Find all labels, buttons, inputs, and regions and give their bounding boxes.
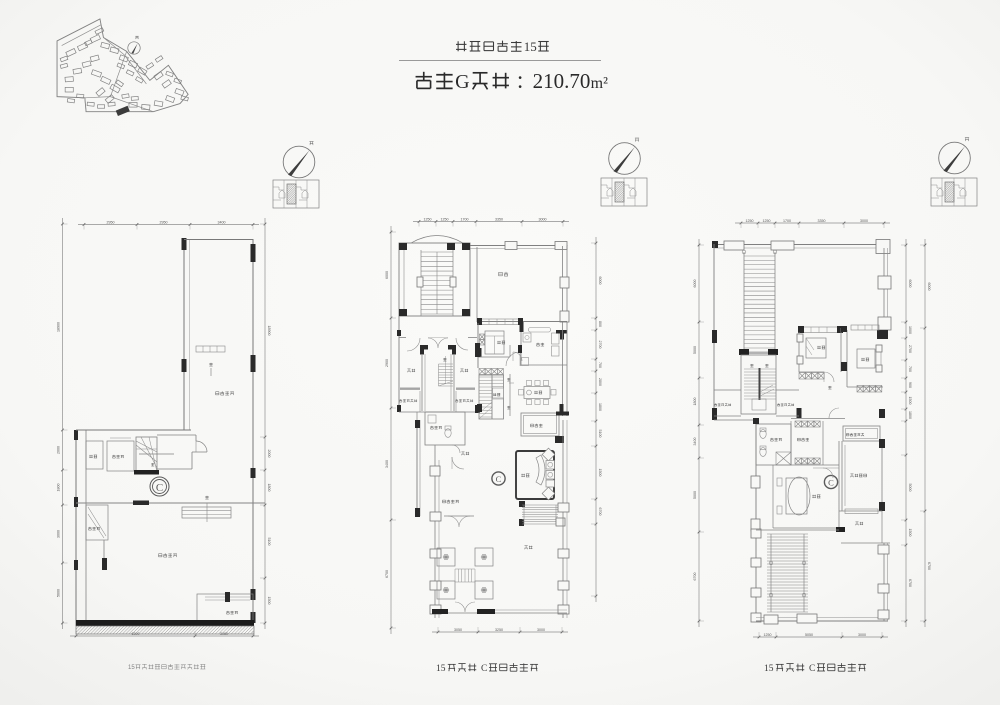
svg-text:900: 900: [908, 382, 912, 388]
svg-text:2950: 2950: [160, 220, 168, 224]
svg-text:C: C: [481, 664, 487, 674]
svg-text:1700: 1700: [783, 219, 791, 223]
svg-text:2700: 2700: [908, 345, 912, 353]
svg-text:6000: 6000: [598, 277, 602, 285]
svg-text:G: G: [455, 71, 469, 93]
svg-text:m²: m²: [591, 75, 608, 92]
svg-text:1500: 1500: [908, 397, 912, 405]
svg-text:3000: 3000: [57, 530, 61, 538]
svg-text:6000: 6000: [927, 283, 931, 291]
svg-text:15: 15: [436, 664, 446, 674]
svg-text:5000: 5000: [693, 491, 697, 499]
svg-text:1800: 1800: [267, 484, 271, 492]
svg-text:3400: 3400: [693, 438, 697, 446]
svg-text:15: 15: [764, 664, 774, 674]
svg-text:6700: 6700: [927, 562, 931, 570]
svg-text:2000: 2000: [267, 450, 271, 458]
svg-text:6700: 6700: [693, 573, 697, 581]
svg-text:5000: 5000: [908, 484, 912, 492]
svg-text:3350: 3350: [495, 217, 503, 221]
svg-text:1250: 1250: [424, 217, 432, 221]
svg-text:210.70: 210.70: [533, 69, 591, 93]
svg-text:6000: 6000: [908, 280, 912, 288]
svg-text:C: C: [496, 474, 502, 484]
svg-text:6000: 6000: [693, 280, 697, 288]
svg-text:1800: 1800: [908, 411, 912, 419]
svg-text:1250: 1250: [764, 633, 772, 637]
svg-text:3400: 3400: [385, 460, 389, 468]
svg-text:6700: 6700: [598, 508, 602, 516]
svg-text:1250: 1250: [441, 217, 449, 221]
svg-text:2950: 2950: [107, 220, 115, 224]
svg-text:5100: 5100: [598, 430, 602, 438]
svg-text:C: C: [828, 477, 834, 487]
svg-text:2900: 2900: [385, 359, 389, 367]
svg-text:5050: 5050: [805, 633, 813, 637]
svg-text:1800: 1800: [693, 398, 697, 406]
svg-text:15: 15: [524, 39, 537, 54]
svg-text:3000: 3000: [539, 217, 547, 221]
svg-text:3400: 3400: [218, 220, 226, 224]
svg-text:3000: 3000: [858, 633, 866, 637]
svg-text:700: 700: [598, 362, 602, 368]
svg-text:5000: 5000: [693, 346, 697, 354]
svg-text:3050: 3050: [454, 628, 462, 632]
svg-text:2000: 2000: [57, 446, 61, 454]
svg-text:1500: 1500: [908, 529, 912, 537]
svg-text:1250: 1250: [746, 219, 754, 223]
svg-text:5600: 5600: [57, 589, 61, 597]
svg-text:：: ：: [516, 72, 534, 92]
svg-text:700: 700: [908, 366, 912, 372]
svg-text:C: C: [809, 664, 815, 674]
svg-text:1000: 1000: [908, 326, 912, 334]
svg-text:18900: 18900: [57, 322, 61, 332]
svg-text:3000: 3000: [860, 219, 868, 223]
svg-text:2800: 2800: [598, 378, 602, 386]
svg-text:3250: 3250: [495, 628, 503, 632]
svg-text:C: C: [156, 482, 163, 494]
svg-text:1500: 1500: [267, 597, 271, 605]
svg-text:3000: 3000: [537, 628, 545, 632]
svg-text:800: 800: [598, 321, 602, 327]
svg-text:3350: 3350: [818, 219, 826, 223]
svg-text:6700: 6700: [385, 570, 389, 578]
svg-text:5100: 5100: [267, 538, 271, 546]
svg-text:6700: 6700: [908, 579, 912, 587]
svg-text:15: 15: [128, 665, 135, 671]
svg-text:18900: 18900: [267, 326, 271, 336]
svg-text:1700: 1700: [461, 217, 469, 221]
svg-text:1800: 1800: [598, 403, 602, 411]
svg-text:1500: 1500: [598, 469, 602, 477]
svg-text:1250: 1250: [763, 219, 771, 223]
svg-text:1800: 1800: [57, 484, 61, 492]
svg-text:6000: 6000: [385, 271, 389, 279]
svg-text:2700: 2700: [598, 341, 602, 349]
